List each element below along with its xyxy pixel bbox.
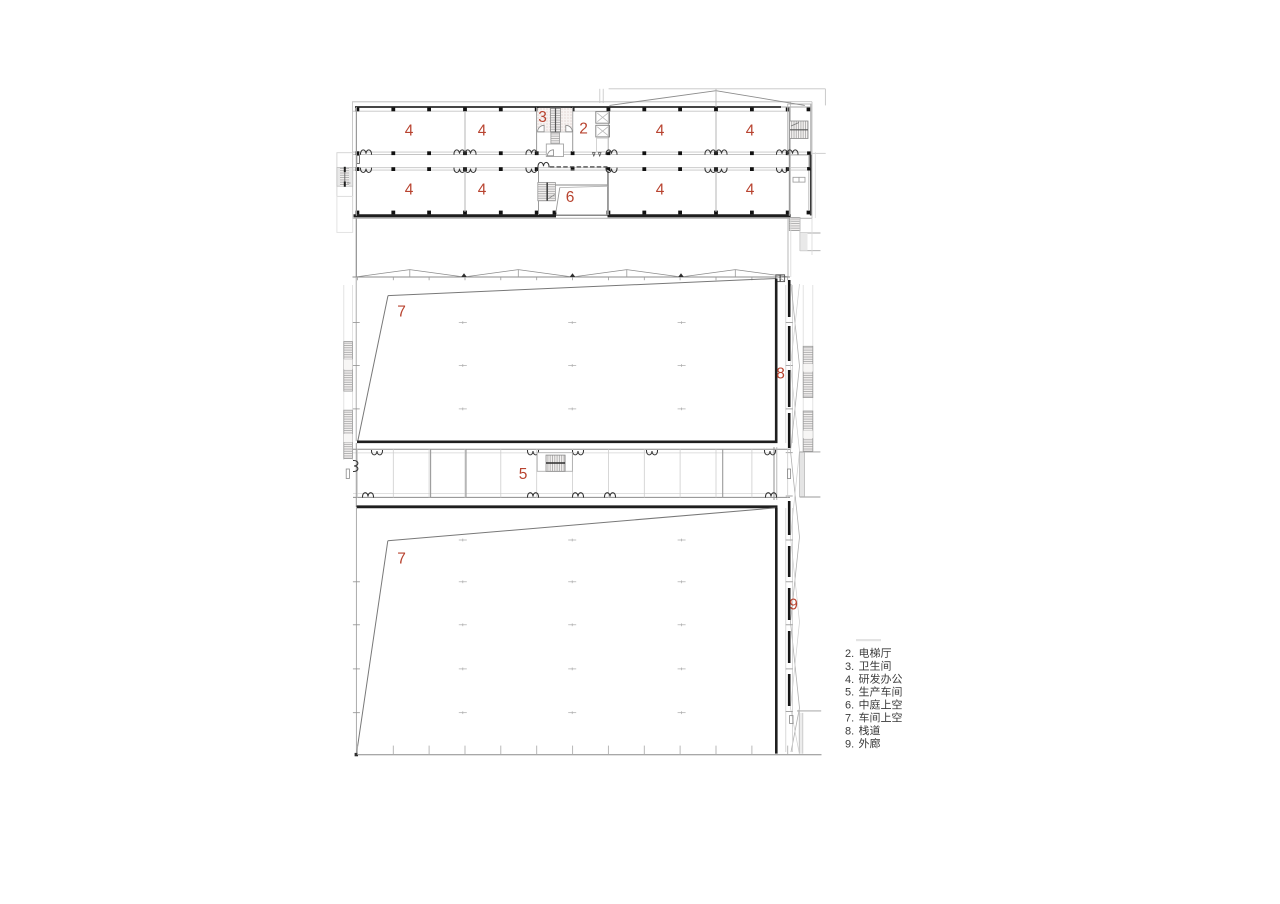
svg-text:9.: 9. — [845, 738, 854, 750]
svg-text:2.: 2. — [845, 648, 854, 660]
svg-text:5.: 5. — [845, 687, 854, 699]
svg-text:8: 8 — [776, 366, 785, 383]
svg-text:4: 4 — [656, 182, 665, 199]
svg-text:8.: 8. — [845, 725, 854, 737]
svg-text:9: 9 — [789, 597, 798, 614]
svg-text:4: 4 — [405, 182, 414, 199]
svg-text:6.: 6. — [845, 700, 854, 712]
svg-text:4: 4 — [656, 123, 665, 140]
svg-text:7: 7 — [397, 304, 406, 321]
svg-text:2: 2 — [579, 121, 588, 138]
svg-text:7.: 7. — [845, 713, 854, 725]
svg-text:3.: 3. — [845, 661, 854, 673]
svg-text:4: 4 — [746, 182, 755, 199]
svg-text:4: 4 — [478, 123, 487, 140]
svg-text:4: 4 — [405, 123, 414, 140]
svg-text:7: 7 — [397, 551, 406, 568]
svg-text:5: 5 — [519, 466, 528, 483]
svg-text:4.: 4. — [845, 674, 854, 686]
svg-text:4: 4 — [746, 123, 755, 140]
svg-text:4: 4 — [478, 182, 487, 199]
svg-text:6: 6 — [566, 189, 575, 206]
svg-text:3: 3 — [538, 109, 547, 126]
